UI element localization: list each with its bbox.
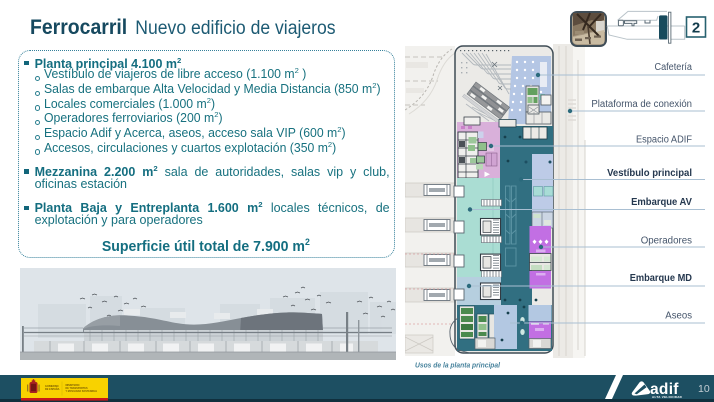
svg-text:ALTA VELOCIDAD: ALTA VELOCIDAD [652, 395, 683, 399]
svg-text:DE ESPAÑA: DE ESPAÑA [45, 388, 60, 391]
svg-text:2: 2 [692, 20, 700, 37]
svg-text:Plataforma de conexión: Plataforma de conexión [591, 99, 692, 110]
svg-text:Espacio ADIF: Espacio ADIF [636, 135, 692, 146]
svg-text:Y MOVILIDAD SOSTENIBLE: Y MOVILIDAD SOSTENIBLE [66, 390, 98, 393]
svg-text:Vestíbulo principal: Vestíbulo principal [607, 168, 692, 179]
svg-text:Operadores: Operadores [641, 235, 692, 246]
svg-text:Embarque MD: Embarque MD [630, 273, 692, 284]
svg-text:Aseos: Aseos [665, 311, 692, 322]
svg-text:Embarque AV: Embarque AV [631, 197, 692, 208]
svg-text:Cafetería: Cafetería [655, 62, 693, 73]
svg-text:Usos de la planta principal: Usos de la planta principal [415, 361, 501, 370]
